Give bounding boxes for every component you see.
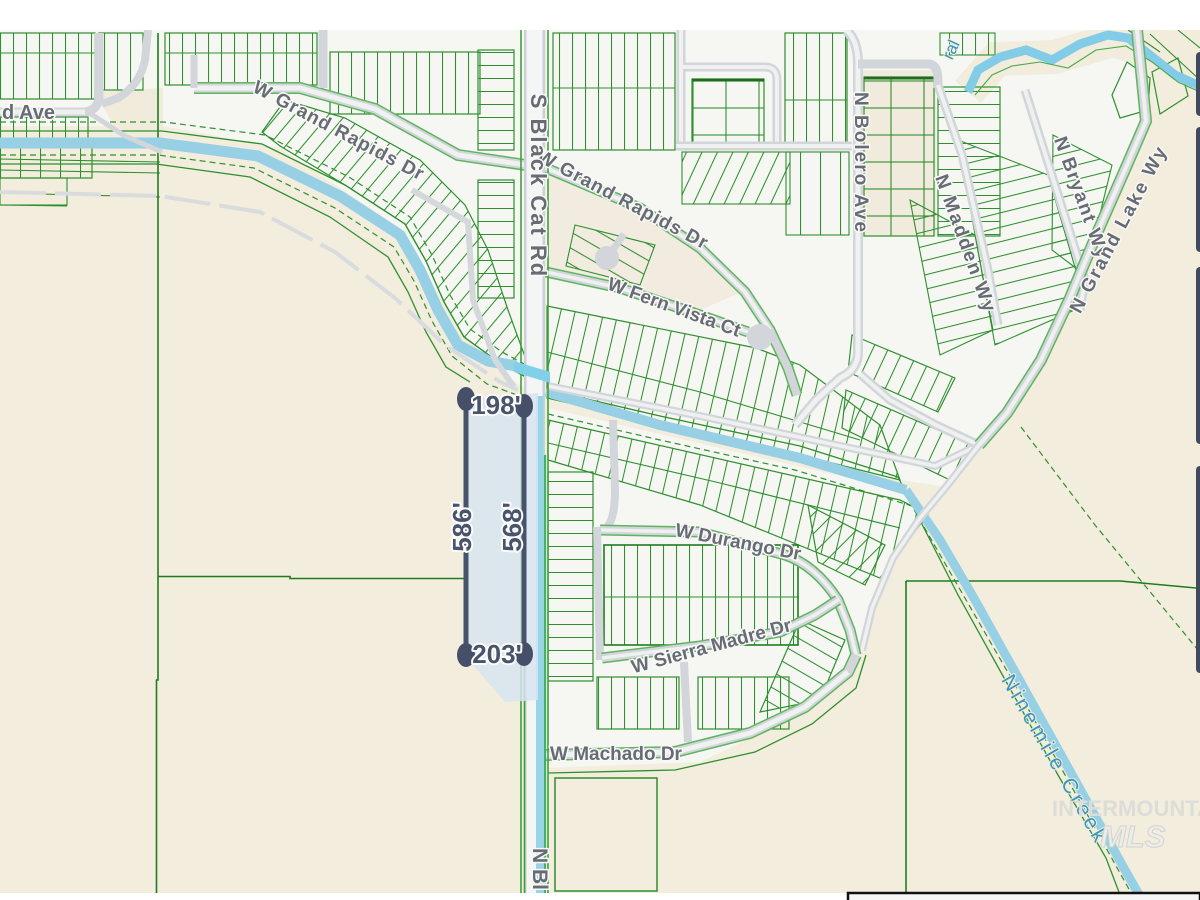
svg-text:198': 198' xyxy=(471,390,521,420)
svg-text:568': 568' xyxy=(497,502,527,552)
svg-text:S Black Cat Rd: S Black Cat Rd xyxy=(526,94,551,279)
svg-text:N Bolero Ave: N Bolero Ave xyxy=(850,92,871,234)
svg-text:W Machado Dr: W Machado Dr xyxy=(550,744,683,765)
svg-text:586': 586' xyxy=(447,502,477,552)
svg-text:INTERMOUNTAIN: INTERMOUNTAIN xyxy=(1052,796,1200,821)
svg-text:N Bl: N Bl xyxy=(528,848,551,890)
svg-text:d Ave: d Ave xyxy=(2,102,55,124)
svg-text:MLS: MLS xyxy=(1100,819,1166,854)
svg-text:203': 203' xyxy=(472,639,522,669)
